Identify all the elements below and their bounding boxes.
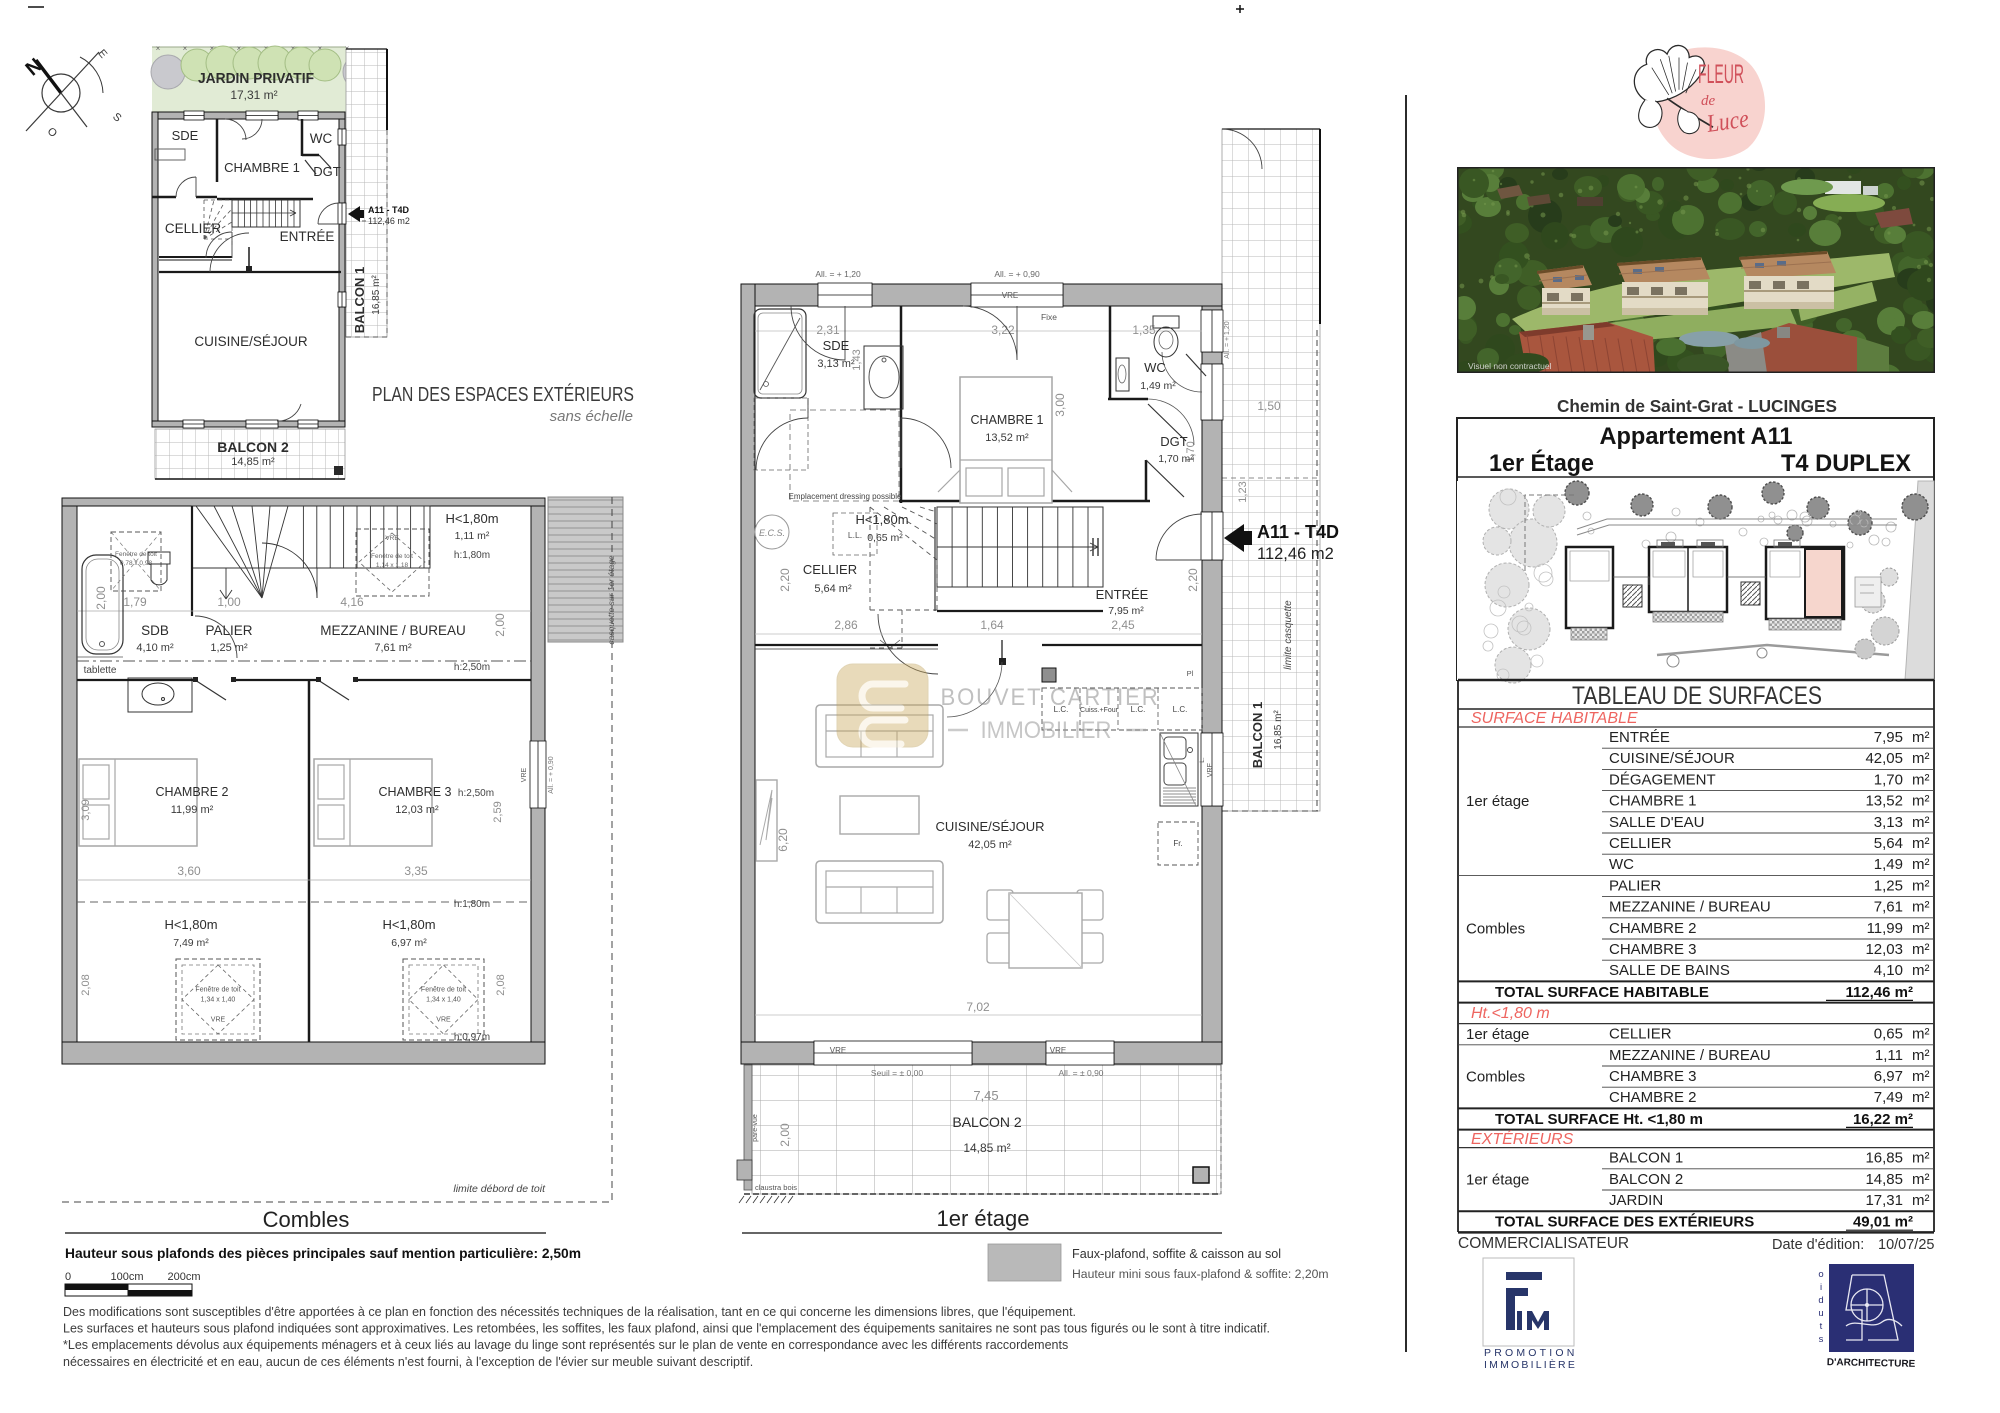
svg-text:L.C.: L.C. (1173, 705, 1188, 714)
svg-text:m²: m² (1912, 962, 1930, 979)
svg-text:VRE: VRE (1002, 291, 1018, 300)
svg-text:SDB: SDB (141, 623, 169, 638)
svg-text:4,10: 4,10 (1874, 962, 1903, 979)
svg-text:Ht.<1,80 m: Ht.<1,80 m (1471, 1005, 1550, 1022)
svg-text:1er étage: 1er étage (1466, 793, 1529, 810)
svg-text:100cm: 100cm (110, 1271, 143, 1283)
svg-text:42,05: 42,05 (1865, 750, 1903, 767)
svg-text:1,00: 1,00 (217, 595, 241, 609)
svg-text:WC: WC (1144, 360, 1166, 375)
svg-text:de: de (1701, 93, 1716, 109)
svg-text:Emplacement dressing possible: Emplacement dressing possible (789, 492, 902, 501)
svg-text:VRE: VRE (830, 1046, 846, 1055)
svg-text:112,46 m²: 112,46 m² (1845, 984, 1913, 1001)
svg-text:m²: m² (1912, 729, 1930, 746)
svg-text:7,61: 7,61 (1874, 899, 1903, 916)
svg-text:12,03: 12,03 (1865, 941, 1903, 958)
svg-text:h:2,50m: h:2,50m (454, 662, 490, 673)
svg-text:14,85 m²: 14,85 m² (963, 1141, 1010, 1155)
svg-text:SURFACE HABITABLE: SURFACE HABITABLE (1471, 710, 1638, 727)
svg-text:2,08: 2,08 (80, 974, 92, 995)
svg-text:L.: L. (1199, 757, 1206, 763)
svg-text:Chemin de Saint-Grat - LUCINGE: Chemin de Saint-Grat - LUCINGES (1557, 396, 1837, 416)
svg-text:BALCON 1: BALCON 1 (352, 267, 367, 333)
svg-text:1,14 x 1,18: 1,14 x 1,18 (376, 562, 409, 569)
svg-text:2,59: 2,59 (492, 801, 504, 822)
svg-text:Date d'édition:: Date d'édition: (1772, 1237, 1864, 1253)
svg-text:1,70: 1,70 (1874, 771, 1903, 788)
svg-text:2,00: 2,00 (778, 1123, 792, 1147)
svg-text:*Les emplacements dévolus aux: *Les emplacements dévolus aux équipement… (63, 1338, 1068, 1352)
svg-text:Fenêtre de toit: Fenêtre de toit (421, 987, 466, 994)
svg-text:TOTAL SURFACE DES EXTÉRIEURS: TOTAL SURFACE DES EXTÉRIEURS (1495, 1214, 1754, 1231)
svg-text:6,97: 6,97 (1874, 1068, 1903, 1085)
svg-text:PLAN DES ESPACES EXTÉRIEURS: PLAN DES ESPACES EXTÉRIEURS (372, 383, 634, 406)
svg-text:CELLIER: CELLIER (803, 562, 857, 577)
svg-text:h:1,80m: h:1,80m (454, 550, 490, 561)
svg-text:MEZZANINE / BUREAU: MEZZANINE / BUREAU (1609, 899, 1771, 916)
svg-text:All. = + 0,90: All. = + 0,90 (548, 756, 555, 793)
svg-text:m²: m² (1912, 1192, 1930, 1209)
svg-text:All. = + 1,20: All. = + 1,20 (815, 269, 861, 279)
svg-text:Fenêtre de toit: Fenêtre de toit (195, 987, 240, 994)
svg-text:2,45: 2,45 (1111, 618, 1135, 632)
svg-text:i: i (1820, 1282, 1822, 1293)
svg-text:×: × (183, 44, 188, 53)
svg-text:BALCON 1: BALCON 1 (1609, 1150, 1683, 1167)
svg-text:3,35: 3,35 (404, 864, 428, 878)
svg-text:limite casquette: limite casquette (1283, 600, 1294, 670)
svg-text:SDE: SDE (823, 338, 850, 353)
svg-text:1er étage: 1er étage (1466, 1026, 1529, 1043)
svg-text:Hauteur sous plafonds des pièc: Hauteur sous plafonds des pièces princip… (65, 1246, 581, 1261)
svg-text:1er Étage: 1er Étage (1489, 449, 1594, 477)
svg-text:m²: m² (1912, 877, 1930, 894)
svg-text:CELLIER: CELLIER (165, 221, 222, 236)
svg-text:BALCON 2: BALCON 2 (217, 439, 289, 455)
svg-text:4,10 m²: 4,10 m² (136, 642, 174, 654)
svg-text:Fenêtre de toit: Fenêtre de toit (371, 553, 413, 560)
svg-text:BALCON 2: BALCON 2 (952, 1114, 1021, 1130)
svg-text:H<1,80m: H<1,80m (445, 511, 498, 526)
svg-text:16,85: 16,85 (1865, 1150, 1903, 1167)
svg-text:sans échelle: sans échelle (550, 408, 633, 425)
svg-text:TOTAL SURFACE HABITABLE: TOTAL SURFACE HABITABLE (1495, 984, 1709, 1001)
svg-text:7,61 m²: 7,61 m² (374, 642, 412, 654)
svg-text:Fixe: Fixe (1041, 312, 1057, 322)
svg-text:CHAMBRE 1: CHAMBRE 1 (971, 413, 1044, 427)
svg-text:6,20: 6,20 (776, 828, 790, 852)
svg-text:O: O (45, 125, 60, 140)
svg-text:17,31: 17,31 (1865, 1192, 1903, 1209)
svg-text:5,64 m²: 5,64 m² (814, 583, 852, 595)
svg-text:nécessaires en électricité et: nécessaires en électricité et en eau, au… (63, 1355, 753, 1369)
svg-text:5,64: 5,64 (1874, 835, 1903, 852)
svg-text:16,22 m²: 16,22 m² (1853, 1111, 1913, 1128)
svg-text:Fr.: Fr. (1173, 839, 1182, 848)
svg-text:DÉGAGEMENT: DÉGAGEMENT (1609, 771, 1716, 788)
svg-text:D'ARCHITECTURE: D'ARCHITECTURE (1827, 1357, 1916, 1370)
svg-text:Seuil = ± 0,00: Seuil = ± 0,00 (871, 1068, 923, 1078)
svg-text:1,64: 1,64 (980, 618, 1004, 632)
svg-text:Hauteur mini sous faux-plafond: Hauteur mini sous faux-plafond & soffite… (1072, 1267, 1329, 1281)
svg-text:m²: m² (1912, 920, 1930, 937)
svg-text:CELLIER: CELLIER (1609, 835, 1672, 852)
svg-text:IMMOBILIER: IMMOBILIER (981, 717, 1112, 744)
svg-text:4,16: 4,16 (340, 595, 364, 609)
svg-text:CHAMBRE 1: CHAMBRE 1 (1609, 793, 1697, 810)
svg-text:13,52 m²: 13,52 m² (985, 432, 1029, 444)
svg-text:3,09: 3,09 (80, 799, 92, 820)
svg-text:×: × (156, 44, 161, 53)
svg-text:3,60: 3,60 (177, 864, 201, 878)
svg-text:10/07/25: 10/07/25 (1878, 1237, 1934, 1253)
svg-text:E: E (95, 47, 109, 60)
svg-text:H<1,80m: H<1,80m (382, 917, 435, 932)
svg-text:d: d (1818, 1295, 1823, 1306)
svg-text:1,35: 1,35 (1132, 323, 1156, 337)
svg-text:CELLIER: CELLIER (1609, 1026, 1672, 1043)
svg-text:S: S (110, 111, 123, 125)
svg-text:ENTRÉE: ENTRÉE (280, 229, 335, 244)
svg-text:CHAMBRE 3: CHAMBRE 3 (1609, 941, 1697, 958)
svg-text:tablette: tablette (84, 665, 117, 676)
svg-text:CHAMBRE 2: CHAMBRE 2 (1609, 1089, 1697, 1106)
svg-text:200cm: 200cm (167, 1271, 200, 1283)
svg-text:1,11 m²: 1,11 m² (455, 530, 490, 542)
svg-text:11,99: 11,99 (1867, 920, 1903, 937)
svg-text:COMMERCIALISATEUR: COMMERCIALISATEUR (1458, 1235, 1629, 1252)
svg-text:14,85 m²: 14,85 m² (231, 456, 275, 468)
svg-text:A11 - T4D: A11 - T4D (368, 205, 410, 215)
svg-text:m²: m² (1912, 1026, 1930, 1043)
svg-text:DGT: DGT (313, 164, 341, 179)
svg-text:1,49: 1,49 (1874, 856, 1903, 873)
svg-text:o: o (1818, 1269, 1823, 1280)
svg-text:limite débord de toit: limite débord de toit (453, 1183, 546, 1195)
svg-text:Faux-plafond, soffite & caisso: Faux-plafond, soffite & caisson au sol (1072, 1247, 1281, 1261)
svg-text:H<1,80m: H<1,80m (855, 512, 908, 527)
svg-text:m²: m² (1912, 835, 1930, 852)
svg-text:0,65: 0,65 (1874, 1026, 1903, 1043)
svg-text:CHAMBRE 2: CHAMBRE 2 (156, 785, 229, 799)
svg-text:E.C.S.: E.C.S. (759, 528, 785, 538)
svg-text:Combles: Combles (1466, 920, 1525, 937)
svg-text:112,46 m2: 112,46 m2 (368, 216, 410, 226)
svg-text:7,49: 7,49 (1874, 1089, 1903, 1106)
svg-text:1,70 m²: 1,70 m² (1158, 453, 1194, 465)
svg-text:SDE: SDE (172, 128, 199, 143)
svg-text:2,00: 2,00 (94, 586, 108, 610)
svg-text:PALIER: PALIER (1609, 877, 1661, 894)
svg-text:6,97 m²: 6,97 m² (391, 937, 427, 949)
svg-text:0,65 m²: 0,65 m² (867, 532, 903, 544)
svg-text:m²: m² (1912, 793, 1930, 810)
svg-text:Pl: Pl (1187, 669, 1194, 678)
svg-text:CUISINE/SÉJOUR: CUISINE/SÉJOUR (1609, 750, 1735, 767)
svg-text:7,45: 7,45 (973, 1088, 998, 1103)
svg-text:pare-vue: pare-vue (752, 1114, 759, 1142)
svg-text:2,20: 2,20 (778, 568, 792, 592)
svg-text:1er étage: 1er étage (937, 1206, 1030, 1231)
svg-text:BALCON 1: BALCON 1 (1250, 702, 1265, 768)
svg-text:All. = + 1,20: All. = + 1,20 (1224, 321, 1231, 358)
svg-text:m²: m² (1912, 1089, 1930, 1106)
svg-text:m²: m² (1912, 1171, 1930, 1188)
svg-text:VRE: VRE (521, 767, 528, 782)
svg-text:VRE: VRE (385, 535, 399, 542)
svg-text:All. = + 0,90: All. = + 0,90 (994, 269, 1040, 279)
svg-text:A11 - T4D: A11 - T4D (1257, 522, 1339, 542)
svg-text:ENTRÉE: ENTRÉE (1096, 587, 1149, 602)
svg-text:m²: m² (1912, 814, 1930, 831)
svg-text:TABLEAU DE SURFACES: TABLEAU DE SURFACES (1572, 682, 1822, 710)
svg-text:WC: WC (1609, 856, 1634, 873)
svg-text:BALCON 2: BALCON 2 (1609, 1171, 1683, 1188)
svg-text:7,02: 7,02 (966, 1000, 990, 1014)
svg-text:CHAMBRE 1: CHAMBRE 1 (224, 160, 300, 175)
svg-text:7,49 m²: 7,49 m² (173, 937, 209, 949)
svg-text:VRE: VRE (436, 1017, 451, 1024)
svg-text:SALLE DE BAINS: SALLE DE BAINS (1609, 962, 1730, 979)
svg-text:42,05 m²: 42,05 m² (968, 839, 1012, 851)
svg-text:2,00: 2,00 (493, 613, 507, 637)
svg-text:Combles: Combles (263, 1207, 350, 1232)
svg-text:m²: m² (1912, 1068, 1930, 1085)
svg-text:Combles: Combles (1466, 1069, 1525, 1086)
svg-text:m²: m² (1912, 1150, 1930, 1167)
svg-text:casquette sur 1er étage: casquette sur 1er étage (606, 555, 616, 645)
svg-text:49,01 m²: 49,01 m² (1853, 1214, 1913, 1231)
svg-text:MEZZANINE / BUREAU: MEZZANINE / BUREAU (1609, 1047, 1771, 1064)
svg-text:m²: m² (1912, 771, 1930, 788)
svg-text:All. = ± 0,90: All. = ± 0,90 (1058, 1068, 1103, 1078)
svg-text:h:1,80m: h:1,80m (454, 899, 490, 910)
svg-text:Les surfaces et hauteurs sous: Les surfaces et hauteurs sous plafond in… (63, 1322, 1270, 1336)
svg-text:EXTÉRIEURS: EXTÉRIEURS (1471, 1129, 1574, 1148)
svg-text:t: t (1820, 1321, 1823, 1332)
svg-text:1er étage: 1er étage (1466, 1171, 1529, 1188)
svg-text:11,99 m²: 11,99 m² (171, 804, 214, 816)
svg-text:1,50: 1,50 (1257, 399, 1281, 413)
svg-text:1,25 m²: 1,25 m² (210, 642, 248, 654)
svg-text:0: 0 (65, 1271, 71, 1283)
svg-text:u: u (1818, 1308, 1823, 1319)
svg-text:IMMOBILIÈRE: IMMOBILIÈRE (1484, 1358, 1577, 1371)
svg-text:1,11: 1,11 (1875, 1047, 1903, 1064)
svg-text:FLEUR: FLEUR (1698, 59, 1744, 89)
svg-text:14,85: 14,85 (1865, 1171, 1903, 1188)
svg-text:WC: WC (310, 131, 333, 146)
svg-text:m²: m² (1912, 941, 1930, 958)
svg-text:17,31 m²: 17,31 m² (230, 88, 277, 102)
svg-text:16,85 m²: 16,85 m² (371, 275, 382, 315)
svg-text:1,25: 1,25 (1874, 877, 1903, 894)
svg-text:PALIER: PALIER (205, 623, 252, 638)
svg-text:VRE: VRE (1050, 1046, 1066, 1055)
svg-text:H<1,80m: H<1,80m (164, 917, 217, 932)
svg-text:MEZZANINE / BUREAU: MEZZANINE / BUREAU (320, 623, 466, 638)
svg-text:SALLE D'EAU: SALLE D'EAU (1609, 814, 1704, 831)
svg-text:CHAMBRE 3: CHAMBRE 3 (1609, 1068, 1697, 1085)
svg-text:m²: m² (1912, 750, 1930, 767)
svg-text:12,03 m²: 12,03 m² (395, 804, 439, 816)
svg-text:2,08: 2,08 (495, 974, 507, 995)
svg-text:m²: m² (1912, 1047, 1930, 1064)
svg-text:N: N (22, 54, 47, 80)
svg-text:1,79: 1,79 (123, 595, 147, 609)
svg-text:JARDIN PRIVATIF: JARDIN PRIVATIF (198, 70, 314, 87)
svg-text:T4 DUPLEX: T4 DUPLEX (1781, 450, 1911, 477)
svg-text:h:2,50m: h:2,50m (458, 788, 494, 799)
svg-text:1,23: 1,23 (1237, 481, 1249, 502)
svg-text:claustra bois: claustra bois (755, 1183, 797, 1192)
svg-text:112,46 m2: 112,46 m2 (1257, 545, 1334, 563)
svg-text:13,52: 13,52 (1865, 793, 1903, 810)
svg-text:ENTRÉE: ENTRÉE (1609, 729, 1670, 746)
svg-text:m²: m² (1912, 899, 1930, 916)
svg-text:h:0,97m: h:0,97m (454, 1032, 490, 1043)
svg-text:TOTAL SURFACE Ht. <1,80 m: TOTAL SURFACE Ht. <1,80 m (1495, 1111, 1703, 1128)
svg-text:7,95 m²: 7,95 m² (1108, 605, 1144, 617)
svg-text:VRE: VRE (1207, 762, 1214, 777)
svg-text:JARDIN: JARDIN (1609, 1192, 1663, 1209)
svg-text:1,34 x 1,40: 1,34 x 1,40 (426, 997, 461, 1004)
svg-text:1,49 m²: 1,49 m² (1140, 380, 1176, 392)
svg-text:2,20: 2,20 (1186, 568, 1200, 592)
svg-text:7,95: 7,95 (1874, 729, 1903, 746)
svg-text:Des modifications sont suscept: Des modifications sont susceptibles d'êt… (63, 1305, 1076, 1319)
svg-text:L.L.: L.L. (848, 530, 862, 540)
svg-text:CHAMBRE 3: CHAMBRE 3 (379, 785, 452, 799)
svg-text:CUISINE/SÉJOUR: CUISINE/SÉJOUR (194, 334, 308, 349)
svg-text:s: s (1819, 1334, 1824, 1345)
svg-text:m²: m² (1912, 856, 1930, 873)
svg-text:3,00: 3,00 (1053, 393, 1067, 417)
svg-text:Visuel non contractuel: Visuel non contractuel (1468, 361, 1552, 371)
svg-text:2,86: 2,86 (834, 618, 858, 632)
svg-text:16,85 m²: 16,85 m² (1273, 710, 1284, 750)
svg-text:1,34 x 1,40: 1,34 x 1,40 (201, 997, 236, 1004)
svg-text:CHAMBRE 2: CHAMBRE 2 (1609, 920, 1697, 937)
svg-text:BOUVET CARTIER: BOUVET CARTIER (941, 684, 1160, 711)
svg-text:DGT: DGT (1160, 434, 1188, 449)
svg-text:Appartement A11: Appartement A11 (1600, 423, 1793, 450)
svg-text:CUISINE/SÉJOUR: CUISINE/SÉJOUR (935, 819, 1044, 834)
svg-text:VRE: VRE (211, 1017, 226, 1024)
svg-text:3,13: 3,13 (1874, 814, 1903, 831)
svg-text:PROMOTION: PROMOTION (1484, 1347, 1578, 1359)
svg-text:3,13 m²: 3,13 m² (817, 358, 855, 370)
svg-text:2,31: 2,31 (816, 323, 840, 337)
